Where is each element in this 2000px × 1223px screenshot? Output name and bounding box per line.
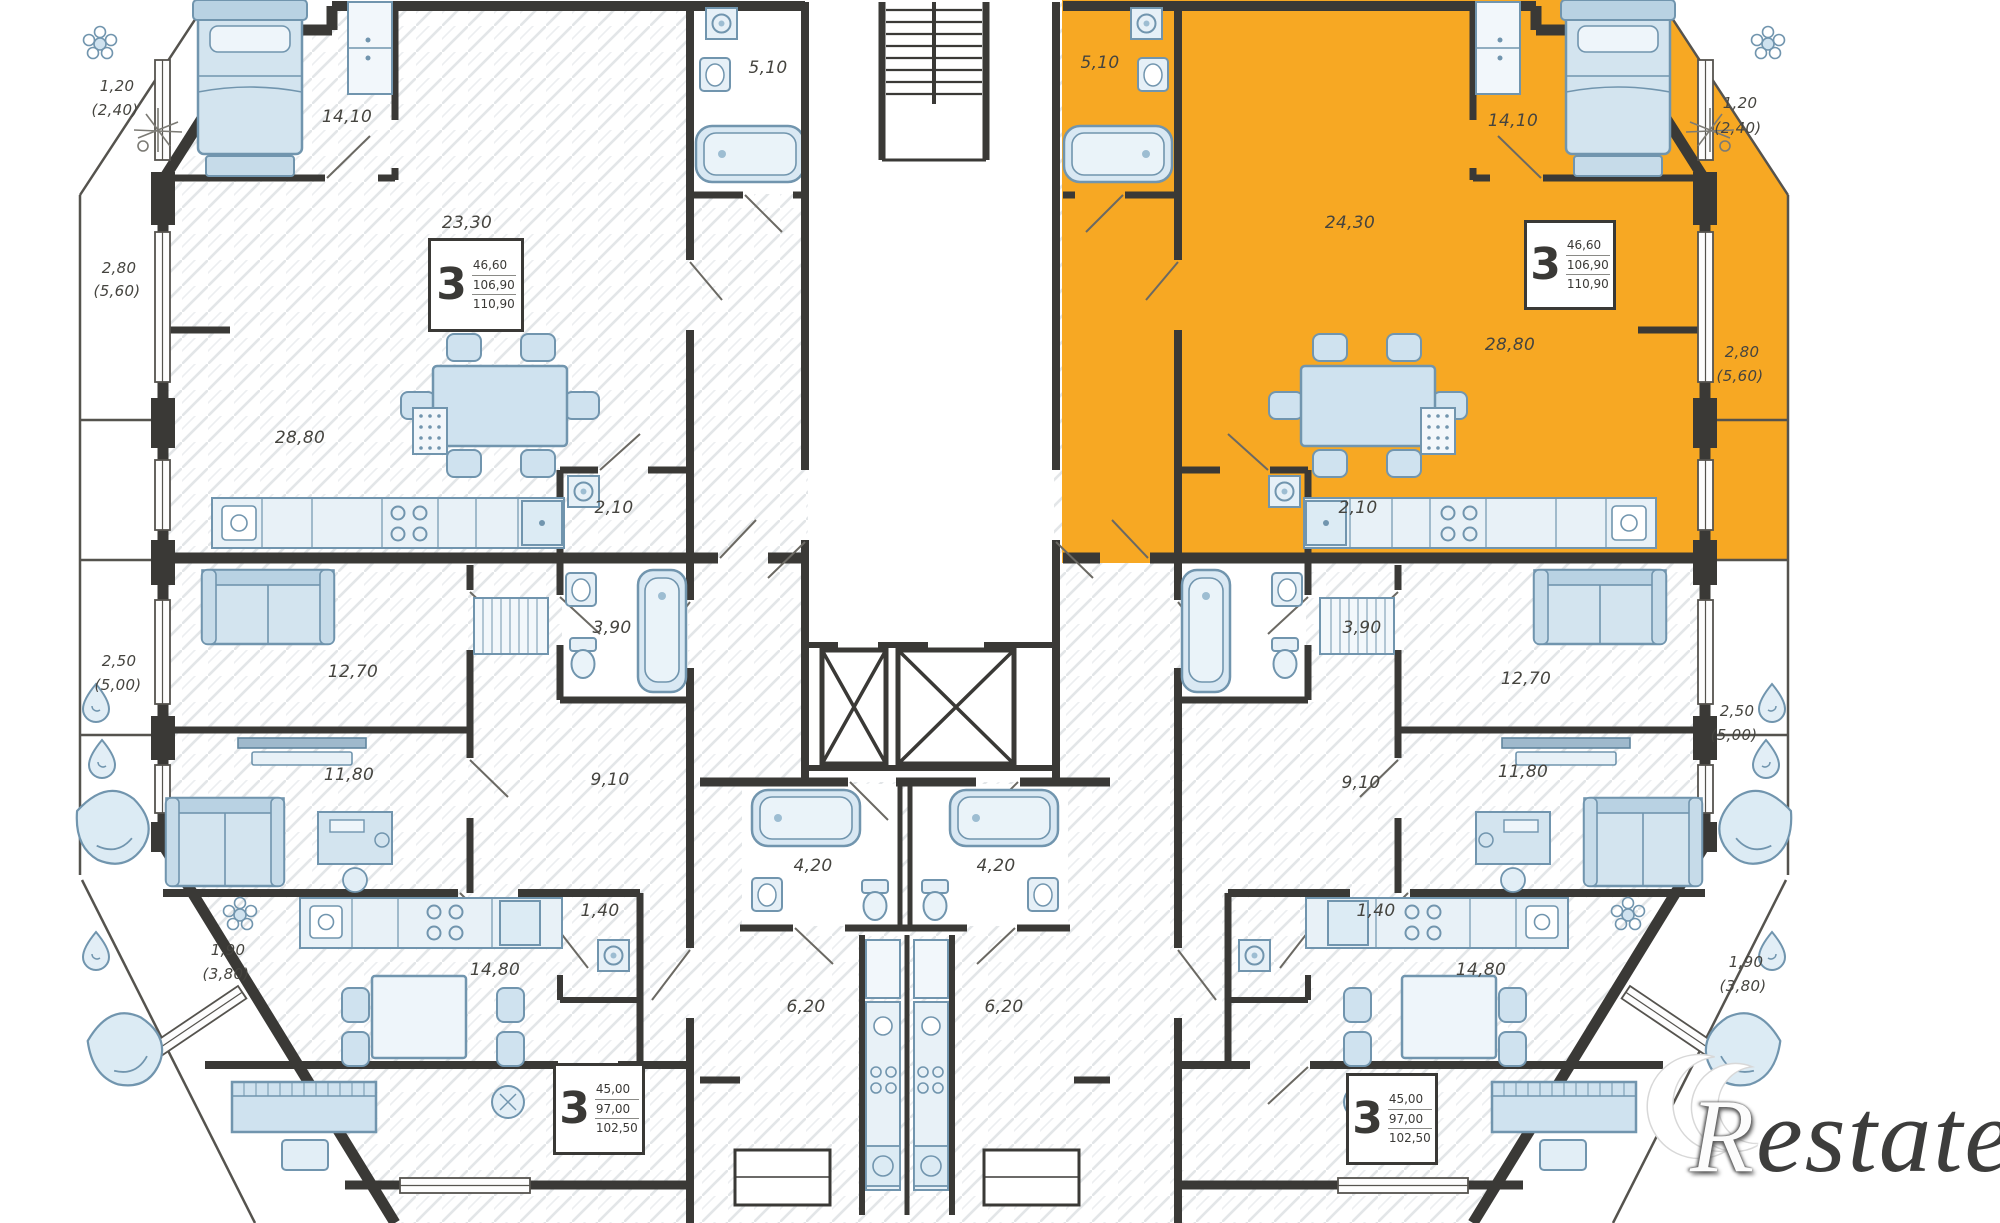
elevator-small-icon [822, 650, 886, 764]
area-total-balcony: 102,50 [1388, 1129, 1432, 1148]
elevator-large-icon [898, 650, 1014, 764]
area-label: 28,80 [275, 428, 325, 448]
room-count: 3 [1352, 1097, 1383, 1141]
area-label: 6,20 [984, 997, 1023, 1017]
area-label: (3,80) [203, 965, 250, 983]
area-label: (5,60) [94, 282, 141, 300]
area-label: 11,80 [1498, 762, 1548, 782]
room-count: 3 [559, 1087, 590, 1131]
area-label: (2,40) [92, 101, 139, 119]
area-label: 14,10 [322, 107, 372, 127]
area-label: 2,50 [1720, 702, 1755, 720]
area-label: 1,20 [100, 77, 135, 95]
highlighted-apartment[interactable] [1062, 0, 1788, 563]
area-total: 97,00 [1388, 1110, 1432, 1130]
area-label: 14,80 [470, 960, 520, 980]
apartment-info-box[interactable]: 3 46,60 106,90 110,90 [428, 238, 524, 332]
area-label: 23,30 [442, 213, 492, 233]
area-label: 4,20 [793, 856, 832, 876]
area-label: 1,90 [1729, 953, 1764, 971]
area-total-balcony: 110,90 [472, 295, 516, 314]
area-label: 28,80 [1485, 335, 1535, 355]
area-label: 11,80 [324, 765, 374, 785]
area-label: (2,40) [1715, 119, 1762, 137]
area-label: 2,80 [1725, 343, 1760, 361]
area-living: 45,00 [595, 1080, 639, 1100]
area-total: 106,90 [1566, 256, 1610, 276]
apartment-info-box[interactable]: 3 45,00 97,00 102,50 [1346, 1073, 1438, 1165]
room-count: 3 [436, 263, 467, 307]
area-label: 2,50 [102, 652, 137, 670]
room-count: 3 [1530, 243, 1561, 287]
area-label: (3,80) [1720, 977, 1767, 995]
floor-plan-drawing [0, 0, 2000, 1223]
area-label: 1,20 [1723, 94, 1758, 112]
area-label: 1,90 [211, 941, 246, 959]
area-label: (5,00) [95, 676, 142, 694]
area-label: 5,10 [1080, 53, 1119, 73]
area-label: 4,20 [976, 856, 1015, 876]
floor-plan-page: 1,20 (2,40) 14,10 23,30 5,10 2,80 (5,60)… [0, 0, 2000, 1223]
area-label: 2,10 [1338, 498, 1377, 518]
area-label: (5,00) [1711, 726, 1758, 744]
area-label: 14,80 [1456, 960, 1506, 980]
area-label: 3,90 [1342, 618, 1381, 638]
area-label: 24,30 [1325, 213, 1375, 233]
area-label: 2,80 [102, 259, 137, 277]
area-label: 2,10 [594, 498, 633, 518]
area-living: 45,00 [1388, 1090, 1432, 1110]
area-living: 46,60 [472, 256, 516, 276]
area-label: 9,10 [590, 770, 629, 790]
area-label: 3,90 [592, 618, 631, 638]
area-label: 12,70 [1501, 669, 1551, 689]
apartment-info-box[interactable]: 3 45,00 97,00 102,50 [553, 1063, 645, 1155]
apartment-info-box[interactable]: 3 46,60 106,90 110,90 [1524, 220, 1616, 310]
area-label: 1,40 [1356, 901, 1395, 921]
area-label: 1,40 [580, 901, 619, 921]
area-total-balcony: 102,50 [595, 1119, 639, 1138]
area-label: (5,60) [1717, 367, 1764, 385]
area-label: 5,10 [748, 58, 787, 78]
stairs-icon [886, 2, 982, 104]
area-label: 14,10 [1488, 111, 1538, 131]
area-label: 9,10 [1341, 773, 1380, 793]
area-total: 106,90 [472, 276, 516, 296]
area-label: 6,20 [786, 997, 825, 1017]
area-total: 97,00 [595, 1100, 639, 1120]
area-living: 46,60 [1566, 236, 1610, 256]
area-total-balcony: 110,90 [1566, 275, 1610, 294]
area-label: 12,70 [328, 662, 378, 682]
